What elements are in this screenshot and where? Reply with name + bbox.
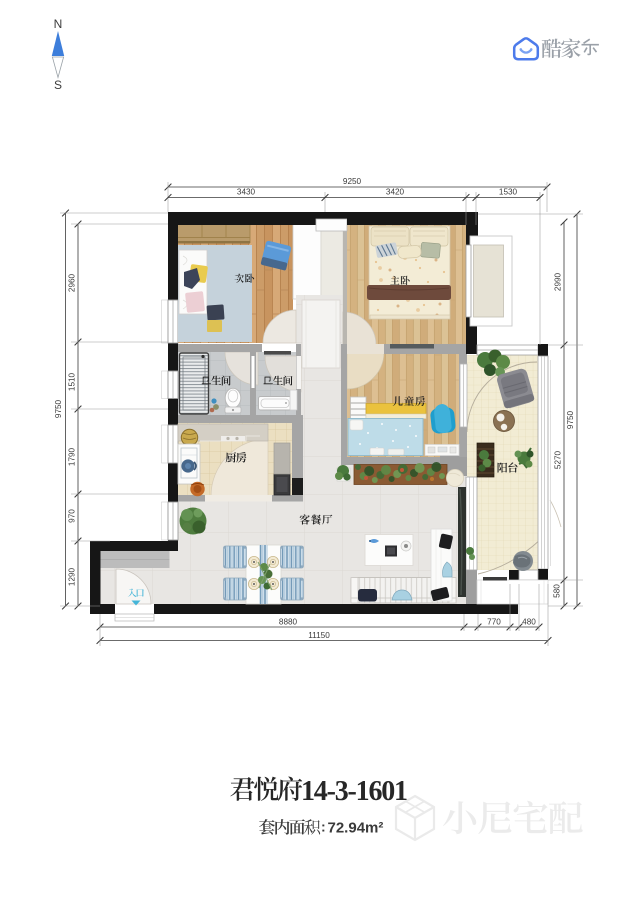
svg-text:5270: 5270 [554, 450, 563, 469]
svg-text:1530: 1530 [499, 188, 518, 197]
svg-text:N: N [54, 17, 63, 31]
svg-text:1290: 1290 [68, 567, 77, 586]
svg-text::: : [321, 819, 326, 835]
svg-text:1790: 1790 [68, 447, 77, 466]
svg-text:72.94m²: 72.94m² [328, 820, 384, 837]
svg-text:2990: 2990 [554, 272, 563, 291]
svg-text:2960: 2960 [68, 273, 77, 292]
svg-text:11150: 11150 [308, 631, 330, 640]
svg-text:480: 480 [522, 618, 536, 627]
svg-text:9750: 9750 [54, 399, 63, 418]
svg-text:9750: 9750 [566, 410, 575, 429]
svg-text:9250: 9250 [343, 177, 362, 186]
svg-text:14-3-1601: 14-3-1601 [301, 776, 407, 807]
svg-text:S: S [54, 78, 62, 92]
svg-text:970: 970 [68, 509, 77, 523]
svg-text:8880: 8880 [279, 618, 298, 627]
svg-text:770: 770 [487, 618, 501, 627]
svg-text:3420: 3420 [386, 188, 405, 197]
svg-text:1510: 1510 [68, 372, 77, 391]
svg-text:3430: 3430 [237, 188, 256, 197]
svg-text:580: 580 [553, 584, 562, 598]
